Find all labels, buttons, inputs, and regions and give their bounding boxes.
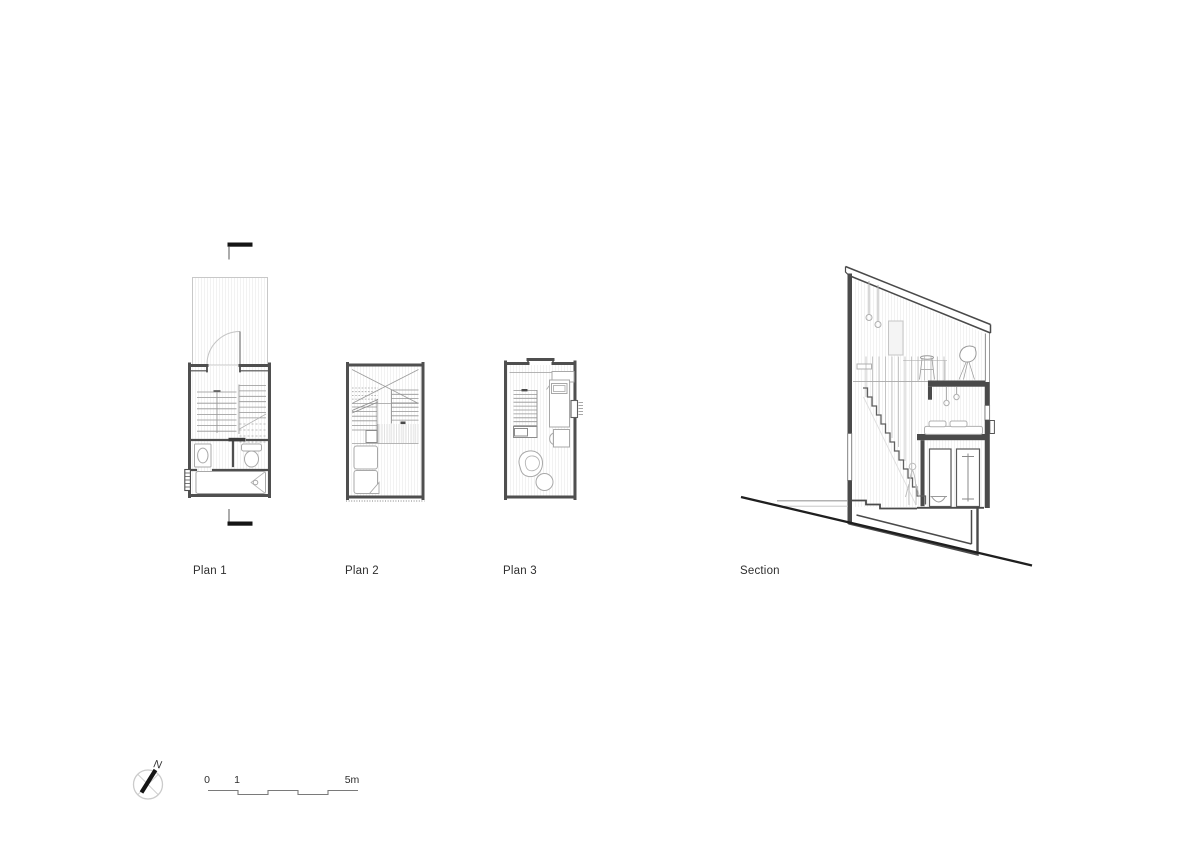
upper-floor-slab	[928, 381, 985, 387]
north-compass-icon: N	[134, 758, 163, 799]
plan1-title: Plan 1	[193, 565, 227, 577]
mid-floor-slab	[917, 434, 985, 440]
desk	[554, 430, 570, 448]
section-right-wall	[985, 334, 995, 509]
scale-tick-5m: 5m	[345, 774, 360, 786]
plan3-window-right	[571, 401, 583, 418]
section-title: Section	[740, 565, 780, 577]
upper-glazing	[986, 334, 990, 383]
toilet-bowl	[245, 451, 259, 467]
section-cut-marker-top	[228, 243, 253, 260]
plan2-title: Plan 2	[345, 565, 379, 577]
plan2-closet	[366, 431, 377, 443]
section-drawing	[741, 267, 1032, 566]
plan1-terrace	[193, 278, 268, 366]
toilet-tank	[242, 444, 262, 451]
bench	[857, 364, 872, 369]
plan2-drawing	[346, 364, 425, 502]
scale-bar: 0 1 5m	[204, 774, 359, 795]
section-cut-marker-bottom	[228, 509, 253, 526]
drawing-canvas: N 0 1 5m	[0, 0, 1200, 849]
plan3-kitchen	[547, 372, 575, 448]
plan3-title: Plan 3	[503, 565, 537, 577]
side-table	[536, 474, 553, 491]
plan1-drawing	[185, 243, 270, 526]
plan2-landing	[378, 424, 419, 444]
rooflight-shaft	[889, 321, 904, 355]
entry-glazing	[848, 434, 852, 481]
window-box	[990, 421, 995, 434]
scale-bar-line	[208, 791, 358, 795]
scale-tick-0: 0	[204, 774, 210, 786]
sink	[195, 444, 212, 467]
scale-tick-1: 1	[234, 774, 240, 786]
section-left-wall	[848, 274, 853, 525]
north-label: N	[152, 758, 162, 771]
plan3-drawing	[506, 358, 584, 499]
plan1-door-threshold	[229, 438, 246, 442]
bedroom-window	[985, 406, 990, 421]
architectural-sheet: { "sheet": { "plans": [ {"label": "Plan …	[0, 0, 1200, 849]
